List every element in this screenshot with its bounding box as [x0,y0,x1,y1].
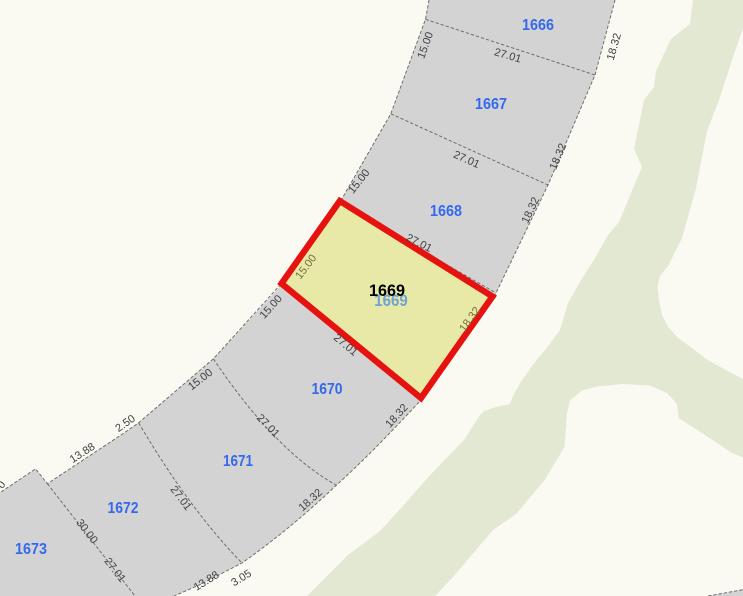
svg-text:1667: 1667 [475,96,507,113]
svg-text:1666: 1666 [522,17,554,34]
svg-text:1671: 1671 [223,453,253,470]
svg-text:1673: 1673 [15,541,47,558]
svg-text:1670: 1670 [312,381,343,398]
svg-text:1668: 1668 [430,203,462,220]
svg-text:1672: 1672 [108,500,139,517]
svg-text:1669: 1669 [369,282,405,300]
